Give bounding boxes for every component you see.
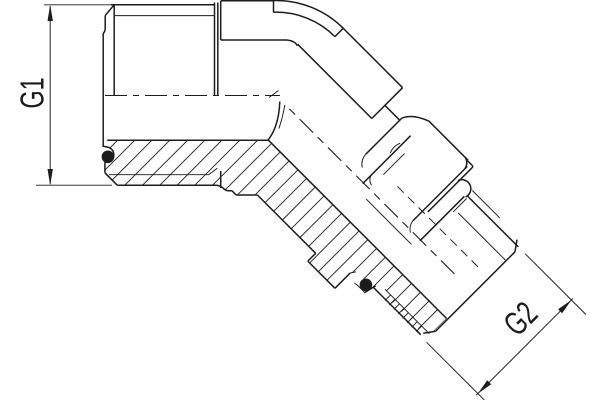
svg-text:G1: G1 [15,77,52,108]
